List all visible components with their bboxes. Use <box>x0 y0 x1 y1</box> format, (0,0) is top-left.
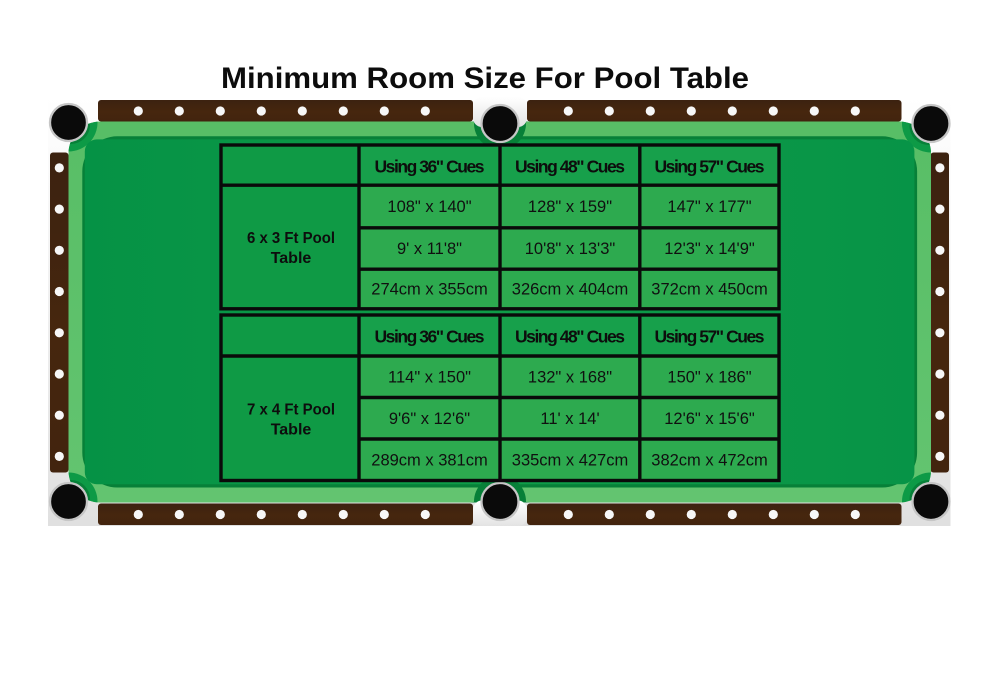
svg-text:Using 48" Cues: Using 48" Cues <box>515 326 625 346</box>
svg-text:132" x 168": 132" x 168" <box>528 368 612 386</box>
svg-text:Table: Table <box>271 250 312 267</box>
svg-text:114" x 150": 114" x 150" <box>388 368 471 386</box>
svg-text:10'8" x 13'3": 10'8" x 13'3" <box>525 240 616 258</box>
svg-text:Table: Table <box>271 421 312 438</box>
svg-text:108" x 140": 108" x 140" <box>387 198 471 216</box>
svg-text:372cm x 450cm: 372cm x 450cm <box>651 281 767 299</box>
svg-text:12'3" x 14'9": 12'3" x 14'9" <box>664 240 755 258</box>
svg-text:9'6" x 12'6": 9'6" x 12'6" <box>389 410 470 428</box>
svg-text:Using 57" Cues: Using 57" Cues <box>655 157 765 177</box>
svg-text:9' x 11'8": 9' x 11'8" <box>397 240 462 258</box>
svg-text:Using 36" Cues: Using 36" Cues <box>375 157 485 177</box>
svg-text:Using 48" Cues: Using 48" Cues <box>515 157 625 177</box>
svg-text:7 x 4 Ft Pool: 7 x 4 Ft Pool <box>247 401 335 418</box>
svg-text:274cm x 355cm: 274cm x 355cm <box>371 281 487 299</box>
svg-text:335cm x 427cm: 335cm x 427cm <box>512 451 628 469</box>
svg-text:12'6" x 15'6": 12'6" x 15'6" <box>664 410 755 428</box>
svg-text:326cm x 404cm: 326cm x 404cm <box>512 281 628 299</box>
svg-text:Using 57" Cues: Using 57" Cues <box>655 326 765 346</box>
svg-text:11' x 14': 11' x 14' <box>540 410 599 428</box>
svg-text:Using 36" Cues: Using 36" Cues <box>375 326 485 346</box>
svg-text:147" x 177": 147" x 177" <box>667 198 751 216</box>
svg-text:6 x 3 Ft Pool: 6 x 3 Ft Pool <box>247 230 335 247</box>
svg-text:128" x 159": 128" x 159" <box>528 198 612 216</box>
svg-text:382cm x 472cm: 382cm x 472cm <box>651 451 767 469</box>
svg-text:Minimum Room Size For Pool Tab: Minimum Room Size For Pool Table <box>221 62 749 95</box>
svg-text:289cm x 381cm: 289cm x 381cm <box>371 451 487 469</box>
svg-text:150" x 186": 150" x 186" <box>667 368 751 386</box>
